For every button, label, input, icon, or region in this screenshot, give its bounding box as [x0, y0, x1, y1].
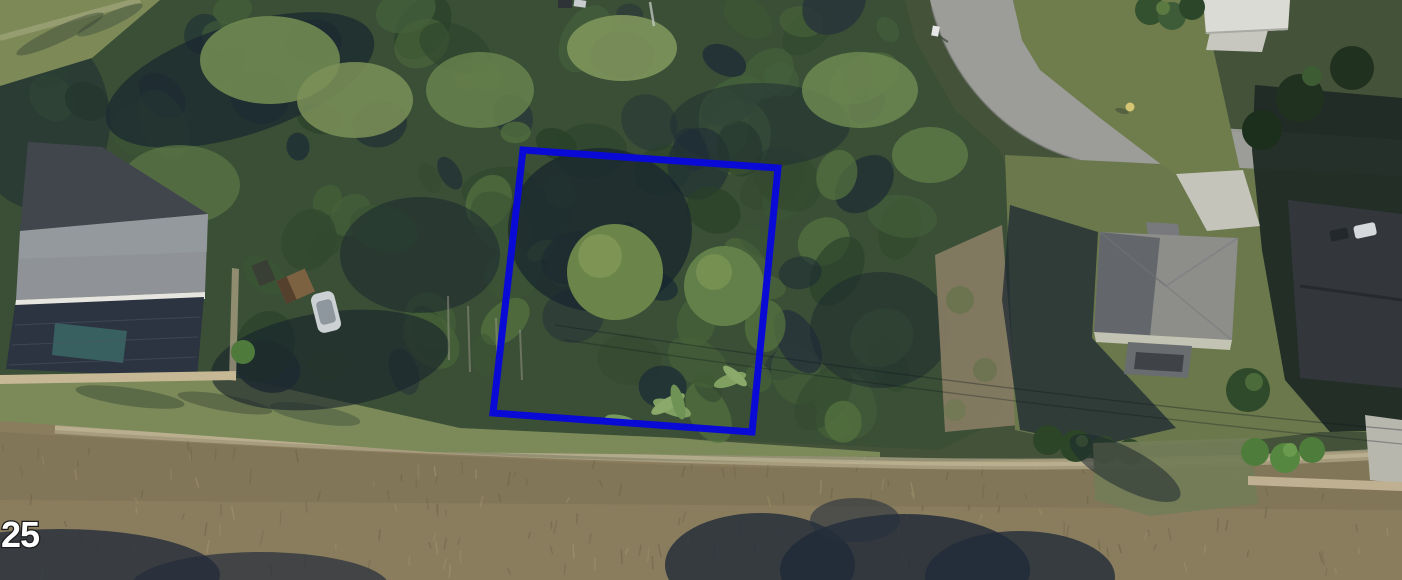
aerial-photo: 25: [0, 0, 1402, 580]
scrub-speckle: [564, 564, 565, 575]
ditch-vegetation: [944, 399, 966, 421]
bright-bush: [1241, 438, 1269, 466]
scrub-speckle: [573, 544, 574, 559]
scrub-speckle: [2, 444, 3, 450]
dark-tree: [1330, 46, 1374, 90]
roof-shaded-plane: [1094, 232, 1160, 336]
canopy-shadow: [810, 272, 950, 388]
yard-tree-highlight: [1245, 373, 1263, 391]
corner-label: 25: [1, 514, 40, 555]
equipment-top-edge: [558, 0, 572, 8]
hedge-bush: [1033, 425, 1063, 455]
scrub-speckle: [379, 529, 380, 540]
scrub-speckle: [462, 462, 463, 474]
scrub-speckle: [418, 465, 419, 479]
sunlit-tree: [297, 62, 413, 138]
tree-highlight: [1302, 66, 1322, 86]
scrub-speckle: [577, 513, 578, 523]
scrub-speckle: [983, 485, 984, 498]
ditch-vegetation: [973, 358, 997, 382]
concrete-pad: [1365, 415, 1402, 484]
canopy-shadow: [340, 197, 500, 313]
scrub-speckle: [621, 549, 622, 564]
pine-trunk: [448, 296, 449, 360]
sunlit-tree: [892, 127, 968, 183]
sunlit-tree: [802, 52, 918, 128]
ditch-vegetation: [946, 286, 974, 314]
scrub-speckle: [215, 449, 216, 460]
parcel-tree-highlight: [578, 234, 622, 278]
scrub-speckle: [449, 564, 450, 578]
scrub-speckle: [416, 481, 417, 489]
scrub-speckle: [1205, 545, 1206, 553]
scrub-speckle: [280, 511, 281, 525]
yard-palm: [231, 340, 255, 364]
yard-tree: [1226, 368, 1270, 412]
sunlit-tree: [567, 15, 677, 81]
dark-tree: [1242, 110, 1282, 150]
scrub-speckle: [1387, 528, 1388, 536]
scrub-speckle: [38, 448, 39, 459]
tree-shadow-blob: [810, 498, 900, 542]
fire-hydrant: [1126, 103, 1135, 112]
scrub-speckle: [527, 479, 528, 486]
aerial-photo-canvas: 25: [0, 0, 1402, 580]
scrub-speckle: [922, 506, 923, 511]
porch-interior: [1134, 352, 1184, 372]
scrub-speckle: [820, 480, 821, 495]
bush-highlight: [1283, 443, 1297, 457]
scrub-speckle: [1359, 547, 1360, 554]
sunlit-tree: [426, 52, 534, 128]
parcel-tree-highlight: [696, 254, 732, 290]
scrub-speckle: [1217, 518, 1218, 531]
scrub-speckle: [783, 492, 784, 504]
bright-bush: [1299, 437, 1325, 463]
palm-highlight: [1156, 1, 1170, 15]
scrub-speckle: [652, 556, 653, 569]
